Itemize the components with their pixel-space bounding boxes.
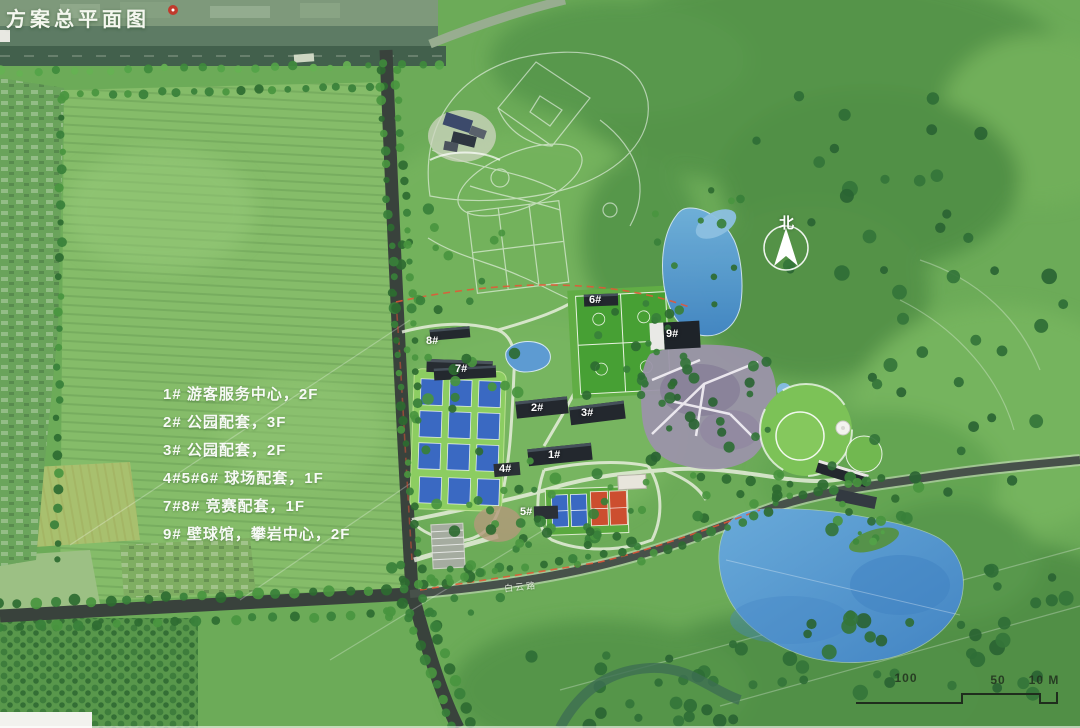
scale-label-100: 100 [880,671,932,685]
legend-item: 2# 公园配套，3F [163,411,350,439]
building-label-9: 9# [666,328,678,340]
building-label-5: 5# [520,506,532,518]
building-label-1: 1# [548,449,560,461]
legend-item: 3# 公园配套，2F [163,439,350,467]
north-label: 北 [779,212,794,233]
scale-label-10m: 10 M [1018,673,1070,687]
building-label-8: 8# [426,335,438,347]
white-pavilion [836,421,850,435]
page-title: 方案总平面图 [6,3,150,32]
master-plan-canvas: 方案总平面图 1# 游客服务中心，2F 2# 公园配套，3F 3# 公园配套，2… [0,0,1080,728]
legend-item: 4#5#6# 球场配套，1F [163,467,350,495]
legend-item: 7#8# 竞赛配套，1F [163,495,350,523]
scale-label-50: 50 [972,673,1024,687]
legend: 1# 游客服务中心，2F 2# 公园配套，3F 3# 公园配套，2F 4#5#6… [163,383,350,551]
building-label-6: 6# [589,294,601,306]
legend-item: 1# 游客服务中心，2F [163,383,350,411]
building-label-4: 4# [499,463,511,475]
building-label-7: 7# [455,363,467,375]
building-label-2: 2# [531,402,543,414]
site-plan-illustration [0,0,1080,728]
building-label-3: 3# [581,407,593,419]
legend-item: 9# 壁球馆，攀岩中心，2F [163,523,350,551]
